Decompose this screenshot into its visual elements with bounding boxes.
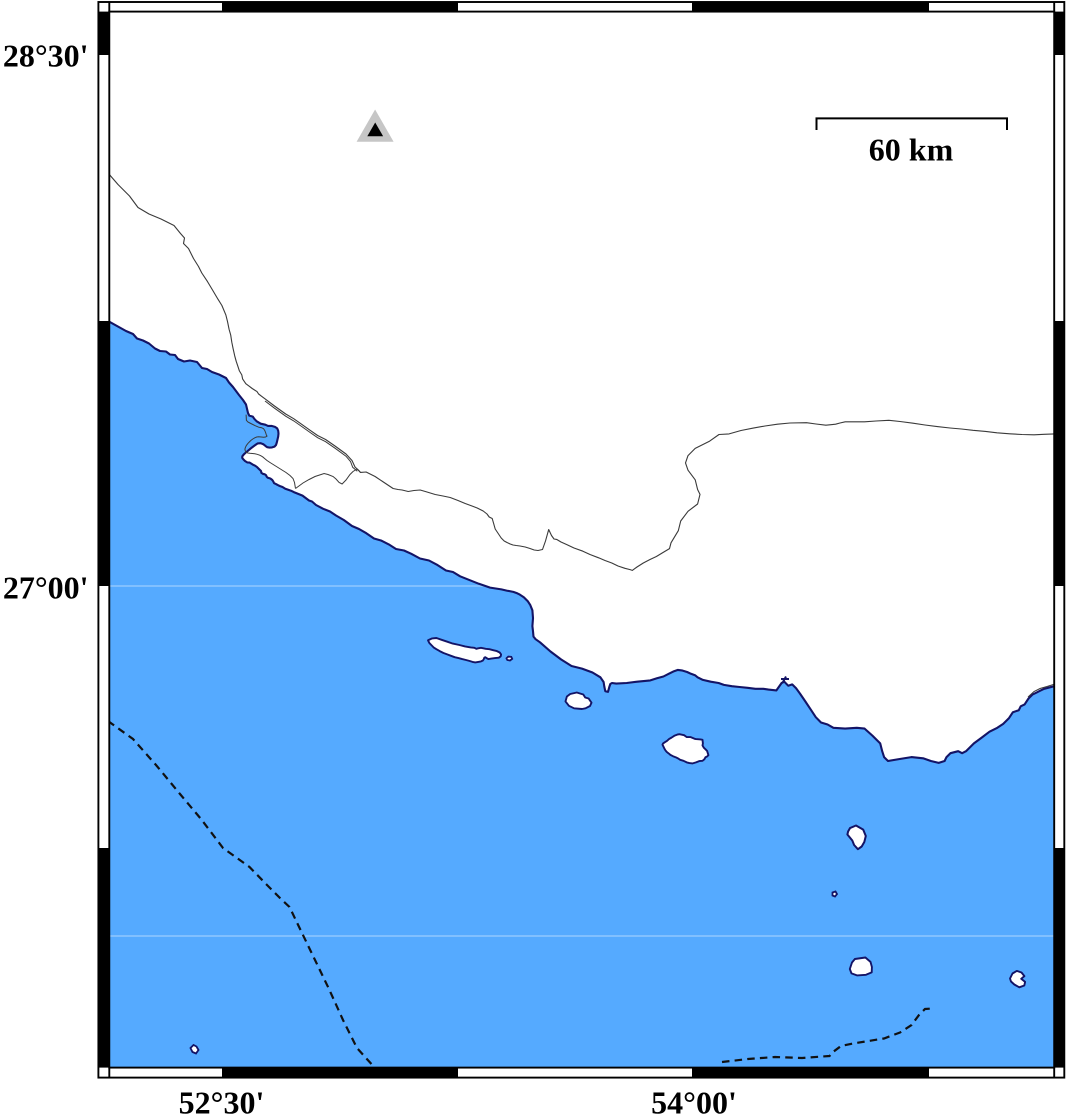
svg-text:54°00': 54°00' xyxy=(651,1085,737,1116)
svg-text:27°00': 27°00' xyxy=(3,570,89,606)
svg-text:60 km: 60 km xyxy=(869,132,954,168)
svg-text:52°30': 52°30' xyxy=(179,1085,265,1116)
svg-text:28°30': 28°30' xyxy=(3,38,89,74)
